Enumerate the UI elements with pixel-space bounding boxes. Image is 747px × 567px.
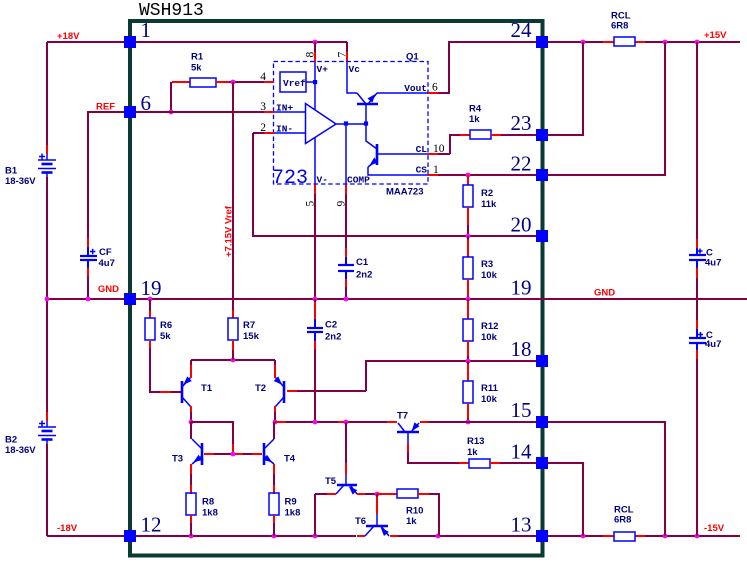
svg-text:-15V: -15V [704, 523, 725, 534]
svg-text:R2: R2 [481, 188, 493, 199]
svg-text:R1: R1 [191, 52, 204, 63]
svg-text:4u7: 4u7 [99, 258, 115, 269]
svg-text:R12: R12 [481, 321, 498, 332]
svg-text:R3: R3 [481, 259, 493, 270]
svg-text:IN+: IN+ [276, 103, 293, 114]
svg-text:3: 3 [260, 101, 266, 113]
svg-text:Vout: Vout [404, 83, 427, 94]
svg-text:CS: CS [416, 165, 428, 176]
svg-text:1: 1 [433, 164, 439, 176]
svg-text:B1: B1 [5, 166, 18, 177]
svg-text:1k8: 1k8 [202, 508, 218, 519]
svg-text:T6: T6 [355, 516, 366, 527]
svg-text:REF: REF [96, 102, 115, 113]
svg-text:10k: 10k [481, 270, 498, 281]
svg-text:C1: C1 [356, 257, 369, 268]
svg-text:T4: T4 [284, 454, 296, 465]
svg-text:T7: T7 [397, 411, 408, 422]
svg-text:19: 19 [511, 276, 532, 300]
svg-text:8: 8 [305, 52, 317, 58]
svg-text:18-36V: 18-36V [5, 445, 36, 456]
svg-text:T1: T1 [201, 383, 213, 394]
svg-text:5k: 5k [191, 63, 202, 74]
svg-text:+18V: +18V [57, 31, 80, 42]
svg-text:6: 6 [141, 91, 152, 115]
svg-text:20: 20 [511, 213, 532, 237]
svg-text:1k8: 1k8 [285, 508, 301, 519]
svg-text:V+: V+ [317, 64, 329, 75]
svg-text:6R8: 6R8 [614, 515, 631, 526]
svg-text:MAA723: MAA723 [386, 187, 424, 198]
svg-text:Vref: Vref [283, 78, 306, 89]
svg-text:T2: T2 [255, 383, 266, 394]
svg-text:T5: T5 [325, 476, 337, 487]
svg-text:-18V: -18V [57, 523, 78, 534]
svg-text:Q1: Q1 [406, 51, 419, 62]
svg-text:5k: 5k [160, 331, 171, 342]
svg-text:5: 5 [305, 201, 317, 207]
svg-text:2: 2 [260, 122, 266, 134]
svg-text:R6: R6 [160, 320, 172, 331]
svg-text:12: 12 [141, 513, 162, 537]
svg-text:Vc: Vc [349, 64, 361, 75]
svg-text:6R8: 6R8 [611, 21, 628, 32]
svg-text:GND: GND [98, 284, 119, 295]
svg-text:R11: R11 [481, 383, 499, 394]
svg-text:24: 24 [511, 18, 533, 42]
svg-text:14: 14 [511, 440, 533, 464]
svg-text:4: 4 [260, 71, 266, 83]
svg-text:1k: 1k [406, 516, 417, 527]
svg-text:2n2: 2n2 [356, 270, 372, 281]
svg-text:9: 9 [336, 201, 348, 207]
svg-text:IN-: IN- [276, 124, 293, 135]
svg-text:4u7: 4u7 [705, 258, 721, 269]
svg-text:23: 23 [511, 111, 532, 135]
svg-text:6: 6 [432, 82, 438, 94]
svg-text:C2: C2 [325, 320, 337, 331]
svg-text:COMP: COMP [347, 175, 370, 186]
svg-text:1: 1 [141, 18, 152, 42]
svg-text:15: 15 [511, 398, 532, 422]
svg-text:R9: R9 [285, 497, 297, 508]
svg-text:+7.15V Vref: +7.15V Vref [224, 205, 235, 257]
svg-text:GND: GND [594, 288, 615, 299]
svg-text:18: 18 [511, 337, 532, 361]
svg-text:B2: B2 [5, 435, 17, 446]
svg-text:CF: CF [99, 247, 112, 258]
svg-text:4u7: 4u7 [705, 339, 721, 350]
svg-text:22: 22 [511, 152, 532, 176]
svg-text:18-36V: 18-36V [5, 176, 36, 187]
svg-text:R10: R10 [406, 506, 423, 517]
svg-text:19: 19 [141, 276, 162, 300]
svg-text:11k: 11k [481, 199, 497, 210]
svg-text:15k: 15k [243, 331, 260, 342]
svg-text:R4: R4 [469, 104, 482, 115]
svg-text:R13: R13 [467, 436, 484, 447]
svg-text:10: 10 [433, 143, 445, 155]
svg-text:13: 13 [511, 513, 532, 537]
svg-text:+15V: +15V [704, 30, 727, 41]
svg-text:T3: T3 [172, 454, 183, 465]
svg-text:V-: V- [317, 175, 328, 186]
svg-text:723: 723 [272, 167, 308, 190]
svg-text:1k: 1k [467, 447, 478, 458]
svg-text:7: 7 [337, 52, 349, 58]
svg-text:1k: 1k [469, 114, 480, 125]
svg-text:CL: CL [416, 144, 428, 155]
svg-text:R8: R8 [202, 497, 214, 508]
svg-text:2n2: 2n2 [325, 332, 341, 343]
svg-text:R7: R7 [243, 320, 255, 331]
svg-text:10k: 10k [481, 332, 498, 343]
svg-text:10k: 10k [481, 394, 498, 405]
